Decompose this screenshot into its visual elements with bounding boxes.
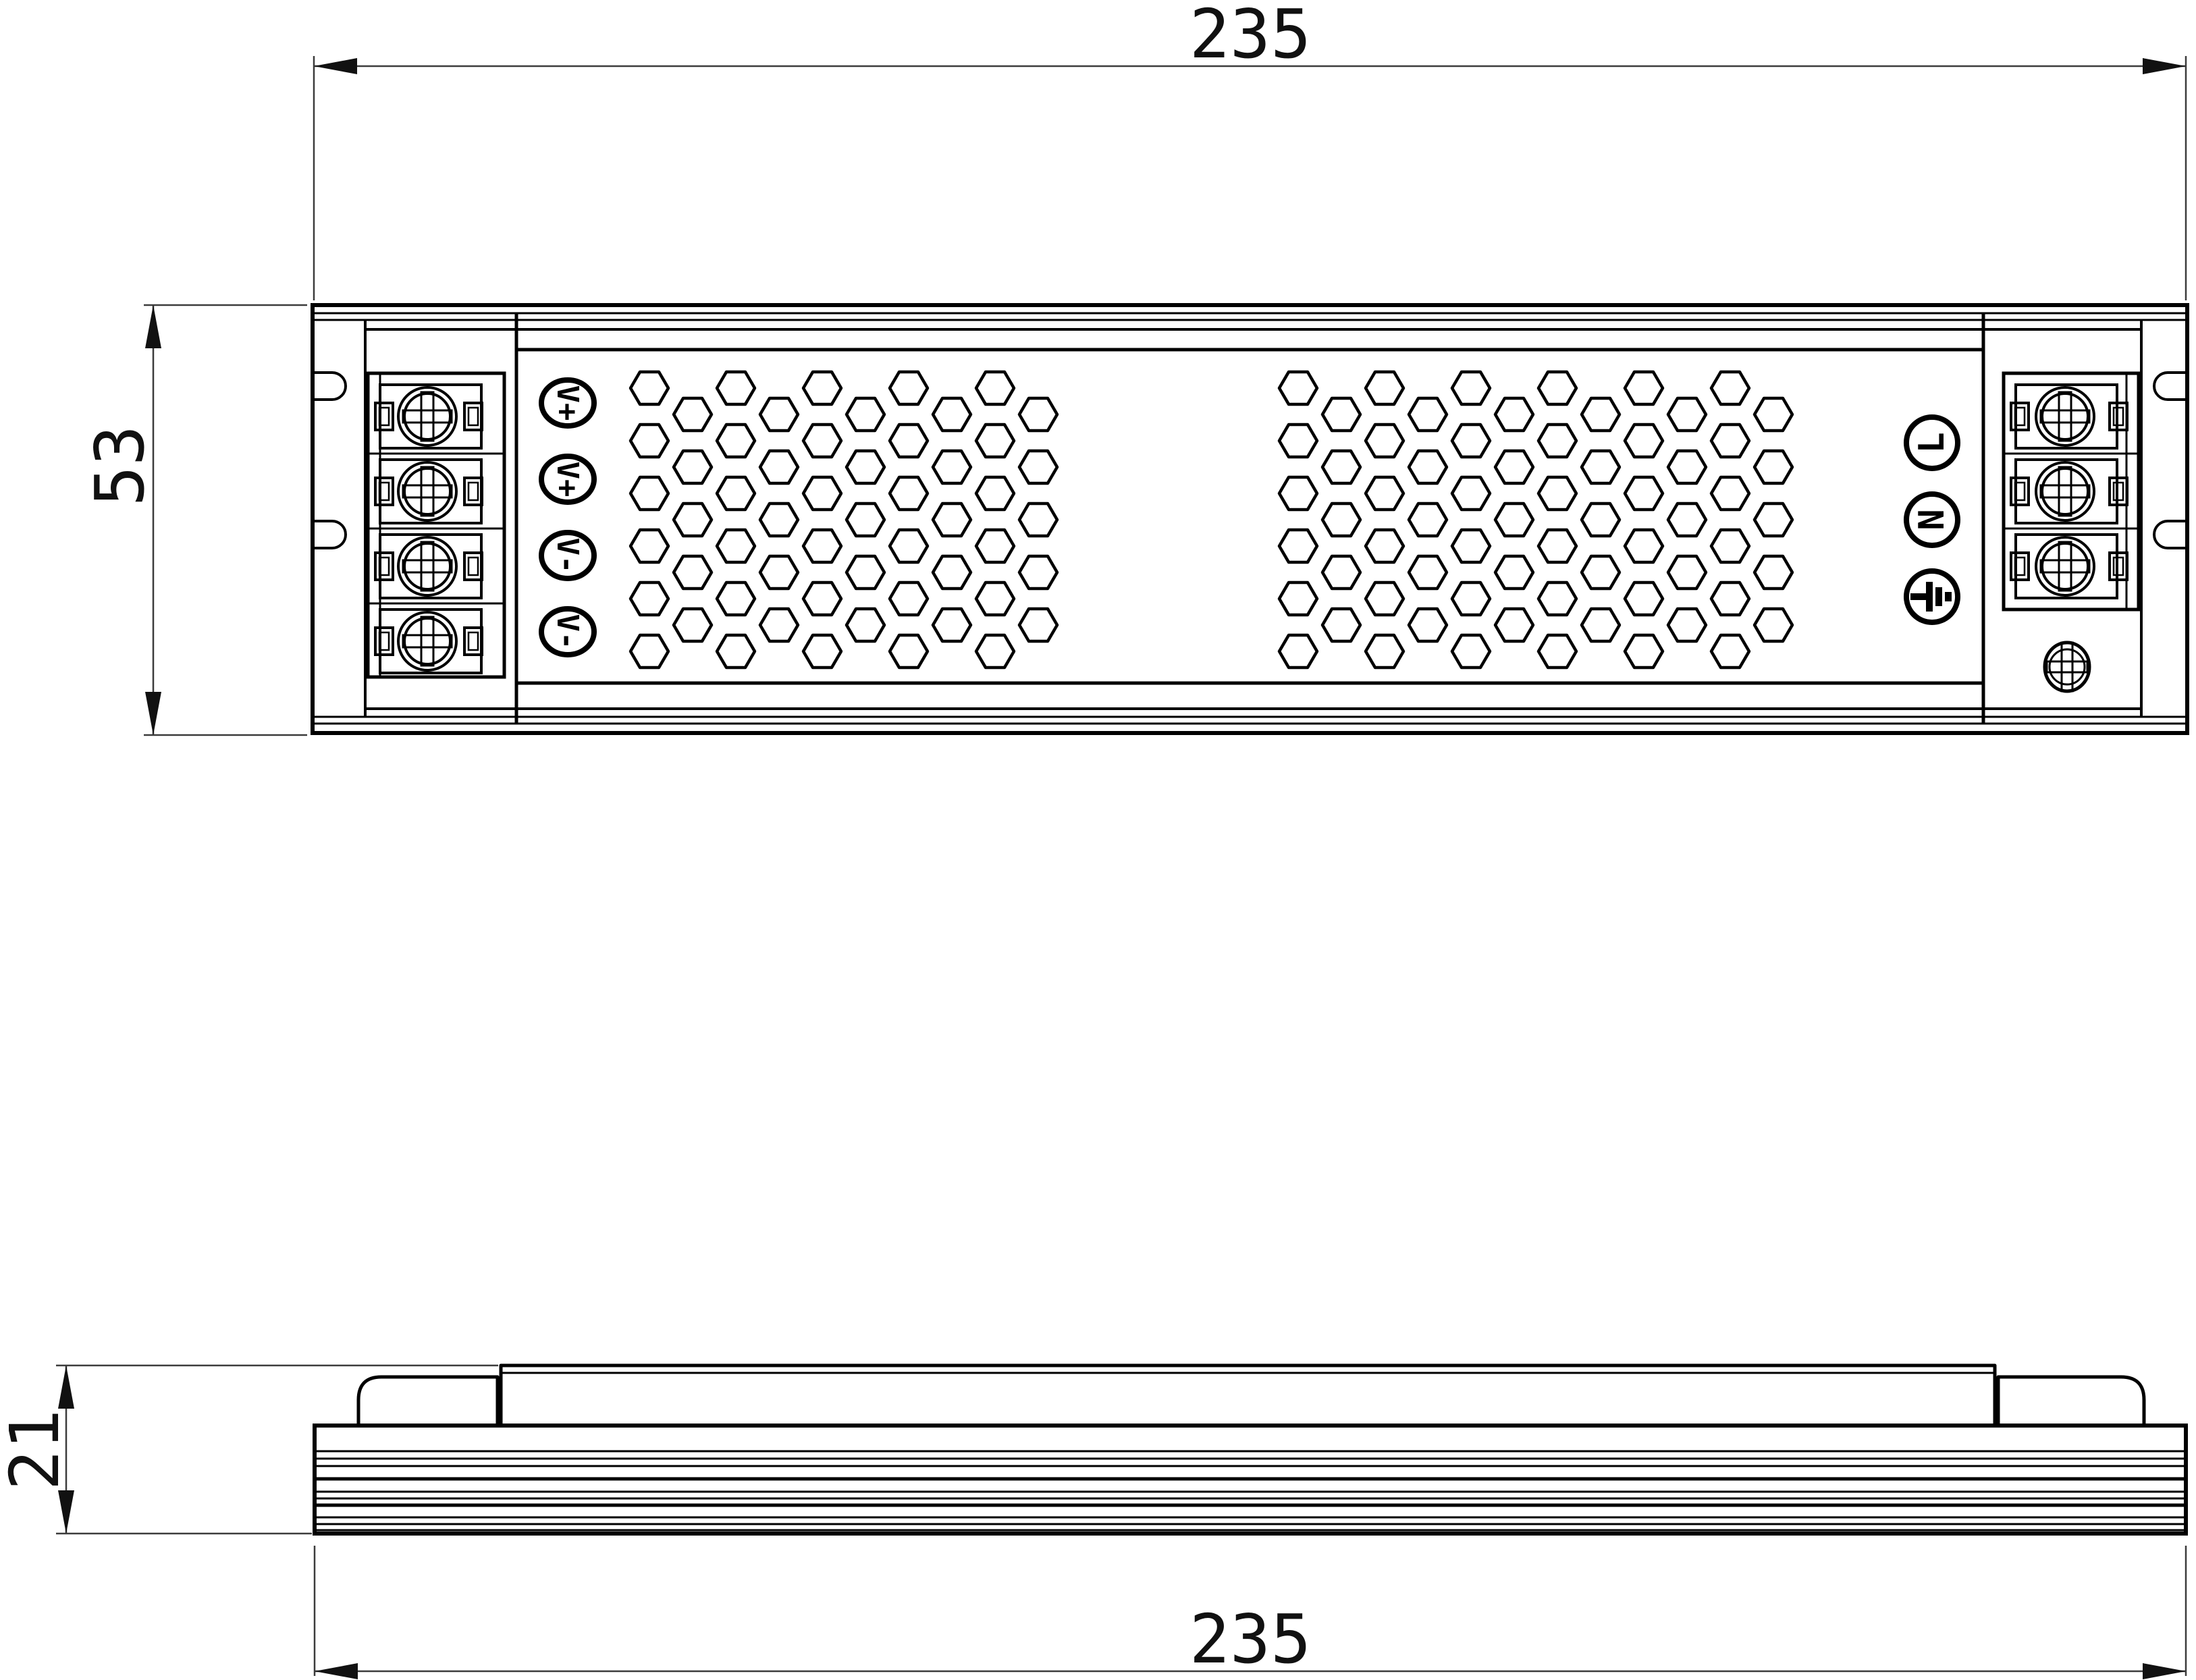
hex-vent-hole	[933, 504, 971, 536]
hex-vent-hole	[1668, 609, 1706, 641]
screw-cross-slot	[2041, 485, 2089, 497]
hex-vent-hole	[1495, 398, 1533, 431]
hex-vent-hole	[631, 635, 668, 668]
hex-vent-hole	[890, 372, 928, 404]
hex-vent-hole	[847, 556, 884, 589]
phillips-screw-icon	[2036, 387, 2094, 445]
hex-vent-hole	[760, 556, 798, 589]
hex-vent-hole	[1366, 530, 1403, 562]
phillips-screw-icon	[2036, 462, 2094, 520]
hex-vent-hole	[1279, 582, 1317, 615]
hex-vent-hole	[1322, 609, 1360, 641]
dim-top-width-text: 235	[1189, 0, 1312, 74]
mounting-notch	[313, 373, 346, 400]
hex-vent-hole	[1755, 504, 1792, 536]
hex-vent-hole	[717, 635, 755, 668]
dim-bottom-width-text: 235	[1189, 1600, 1312, 1679]
phillips-screw-icon	[2036, 537, 2094, 595]
terminal-cell	[375, 385, 482, 448]
mounting-notch	[313, 521, 346, 548]
output-terminal-labels: V+V+V-V-	[541, 380, 594, 655]
dimension-arrow	[145, 692, 161, 735]
hex-vent-hole	[674, 398, 712, 431]
hex-vent-hole	[890, 635, 928, 668]
hex-vent-hole	[1538, 425, 1576, 457]
screw-head-inner	[404, 543, 450, 589]
hex-vent-hole	[631, 425, 668, 457]
screw-head-outer	[398, 462, 456, 520]
hex-vent-hole	[890, 582, 928, 615]
hex-vent-hole	[976, 425, 1014, 457]
hex-vent-hole	[631, 582, 668, 615]
hex-vent-hole	[674, 451, 712, 483]
hex-vent-hole	[1452, 372, 1490, 404]
terminal-clamp-inner	[468, 408, 478, 425]
screw-head-inner	[404, 618, 450, 664]
screw-head-outer	[398, 537, 456, 595]
hex-vent-hole	[1366, 582, 1403, 615]
phillips-screw-icon	[398, 537, 456, 595]
screw-cross-slot	[421, 542, 433, 591]
dim-side-height-text: 21	[0, 1409, 74, 1490]
output-terminal-label: V-	[550, 538, 585, 574]
hex-vent-hole	[1582, 556, 1619, 589]
hex-vent-hole	[1409, 609, 1447, 641]
hex-vent-hole	[1409, 451, 1447, 483]
hex-vent-hole	[631, 477, 668, 510]
hex-vent-hole	[1668, 398, 1706, 431]
dimension-top-width	[314, 56, 2186, 300]
output-terminal-label: V-	[550, 614, 585, 650]
hex-vent-hole	[1711, 372, 1749, 404]
hex-vent-hole	[1366, 635, 1403, 668]
dimension-arrow	[58, 1490, 74, 1534]
screw-head-outer	[2036, 462, 2094, 520]
hex-vent-hole	[1409, 504, 1447, 536]
screw-head-inner	[2042, 468, 2088, 514]
dimension-arrow	[2143, 58, 2186, 74]
output-terminal-block	[368, 373, 504, 677]
screw-cross-slot	[2041, 410, 2089, 423]
hex-vent-hole	[1711, 582, 1749, 615]
dimension-arrow	[2143, 1663, 2186, 1679]
endcap-profile-right	[1998, 1377, 2144, 1426]
hex-vent-hole	[1495, 556, 1533, 589]
terminal-clamp-inner	[468, 558, 478, 575]
hex-vent-hole	[803, 635, 841, 668]
earth-ground-icon	[1910, 582, 1948, 612]
hex-vent-hole	[674, 504, 712, 536]
hex-vent-hole	[933, 451, 971, 483]
hex-vent-hole	[1495, 451, 1533, 483]
housing-top-profile	[501, 1365, 1995, 1426]
terminal-clamp-inner	[468, 632, 478, 650]
hex-vent-hole	[717, 372, 755, 404]
hex-vent-hole	[1711, 425, 1749, 457]
hex-vent-hole	[1409, 398, 1447, 431]
dimension-arrow	[145, 305, 161, 348]
hex-vent-hole	[890, 477, 928, 510]
hex-vent-hole	[1625, 372, 1663, 404]
hex-vent-hole	[1279, 425, 1317, 457]
hex-vent-hole	[1755, 609, 1792, 641]
case-ground-screw	[2045, 643, 2089, 691]
hex-vent-hole	[1538, 635, 1576, 668]
hex-vent-hole	[631, 372, 668, 404]
hex-vent-hole	[890, 530, 928, 562]
hex-vent-hole	[1582, 609, 1619, 641]
terminal-clamp-inner	[468, 483, 478, 500]
screw-cross-slot	[403, 485, 452, 497]
hex-vent-hole	[1322, 451, 1360, 483]
phillips-screw-icon	[398, 462, 456, 520]
dimension-drawing: V+V+V-V-LN 235 53 21 235	[0, 0, 2196, 1680]
hex-vent-hole	[803, 477, 841, 510]
hex-vent-hole	[847, 609, 884, 641]
hex-vent-hole	[933, 556, 971, 589]
hex-vent-hole	[717, 477, 755, 510]
hex-vent-hole	[631, 530, 668, 562]
dim-left-height-text: 53	[80, 425, 159, 506]
screw-cross-slot	[2041, 560, 2089, 572]
screw-cross-slot	[2059, 392, 2071, 441]
hex-vent-hole	[1538, 530, 1576, 562]
hex-vent-hole	[1538, 477, 1576, 510]
hex-vent-hole	[1279, 372, 1317, 404]
endcap-profile-left	[358, 1377, 498, 1426]
dimension-side-height	[56, 1365, 498, 1534]
hex-vent-hole	[1322, 504, 1360, 536]
hex-vent-hole	[933, 398, 971, 431]
terminal-cell	[375, 535, 482, 598]
hex-vent-hole	[847, 451, 884, 483]
screw-cross-slot	[403, 560, 452, 572]
vent-pattern-right	[1279, 372, 1792, 668]
cover-profile	[358, 1365, 2144, 1426]
mounting-notch	[2154, 521, 2187, 548]
hex-vent-hole	[847, 504, 884, 536]
hex-vent-hole	[1322, 398, 1360, 431]
dimension-left-height	[144, 305, 307, 735]
hex-vent-hole	[803, 425, 841, 457]
screw-cross-slot	[2047, 661, 2087, 672]
vent-pattern-left	[631, 372, 1057, 668]
drawing-sheet: V+V+V-V-LN 235 53 21 235	[0, 0, 2196, 1680]
hex-vent-hole	[1366, 372, 1403, 404]
hex-vent-hole	[1279, 530, 1317, 562]
input-terminal-labels: LN	[1906, 417, 1958, 622]
hex-vent-hole	[1495, 609, 1533, 641]
hex-vent-hole	[1582, 451, 1619, 483]
hex-vent-hole	[1711, 530, 1749, 562]
hex-vent-hole	[1495, 504, 1533, 536]
dimension-arrow	[58, 1365, 74, 1409]
screw-cross-slot	[2059, 542, 2071, 591]
hex-vent-hole	[1019, 504, 1057, 536]
hex-vent-hole	[803, 582, 841, 615]
hex-vent-hole	[933, 609, 971, 641]
hex-vent-hole	[1322, 556, 1360, 589]
hex-vent-hole	[1019, 451, 1057, 483]
hex-vent-hole	[1366, 425, 1403, 457]
hex-vent-hole	[1452, 635, 1490, 668]
hex-vent-hole	[976, 635, 1014, 668]
hex-vent-hole	[760, 398, 798, 431]
hex-vent-hole	[1625, 425, 1663, 457]
screw-head-inner	[2050, 649, 2085, 684]
mounting-notch	[2154, 373, 2187, 400]
screw-cross-slot	[403, 635, 452, 647]
hex-vent-hole	[1409, 556, 1447, 589]
output-terminal-label: V+	[550, 462, 585, 497]
hex-vent-hole	[1538, 582, 1576, 615]
input-terminal-label: L	[1912, 432, 1952, 453]
hex-vent-hole	[1625, 477, 1663, 510]
hex-vent-hole	[717, 530, 755, 562]
screw-head-inner	[404, 468, 450, 514]
hex-vent-hole	[1452, 582, 1490, 615]
screw-head-inner	[2042, 394, 2088, 439]
hex-vent-hole	[1668, 504, 1706, 536]
hex-vent-hole	[803, 530, 841, 562]
screw-cross-slot	[421, 617, 433, 666]
hex-vent-hole	[1019, 609, 1057, 641]
hex-vent-hole	[717, 582, 755, 615]
screw-cross-slot	[421, 467, 433, 516]
hex-vent-hole	[1538, 372, 1576, 404]
hex-vent-hole	[976, 372, 1014, 404]
dimension-arrow	[315, 1663, 358, 1679]
input-terminal-block	[2004, 373, 2139, 609]
hex-vent-hole	[976, 477, 1014, 510]
hex-vent-hole	[1452, 425, 1490, 457]
hex-vent-hole	[1582, 398, 1619, 431]
hex-vent-hole	[1755, 451, 1792, 483]
output-terminal-label: V+	[550, 385, 585, 421]
screw-head-outer	[2036, 537, 2094, 595]
hex-vent-hole	[1755, 556, 1792, 589]
hex-vent-hole	[803, 372, 841, 404]
dimension-arrow	[314, 58, 357, 74]
top-view: V+V+V-V-LN	[313, 305, 2187, 733]
hex-vent-hole	[1452, 530, 1490, 562]
terminal-cell	[2011, 460, 2127, 523]
phillips-screw-icon	[398, 612, 456, 670]
hex-vent-hole	[976, 530, 1014, 562]
hex-vent-hole	[1668, 451, 1706, 483]
hex-vent-hole	[1755, 398, 1792, 431]
hex-vent-hole	[674, 556, 712, 589]
hex-vent-hole	[674, 609, 712, 641]
screw-cross-slot	[2059, 467, 2071, 516]
hex-vent-hole	[1366, 477, 1403, 510]
hex-vent-hole	[847, 398, 884, 431]
hex-vent-hole	[1625, 582, 1663, 615]
terminal-cell	[2011, 535, 2127, 598]
terminal-cell	[375, 609, 482, 673]
hex-vent-hole	[1279, 635, 1317, 668]
hex-vent-hole	[717, 425, 755, 457]
hex-vent-hole	[760, 609, 798, 641]
hex-vent-hole	[890, 425, 928, 457]
terminal-cell	[375, 460, 482, 523]
terminal-cell	[2011, 385, 2127, 448]
hex-vent-hole	[1019, 556, 1057, 589]
hex-vent-hole	[976, 582, 1014, 615]
hex-vent-hole	[760, 451, 798, 483]
hex-vent-hole	[1625, 530, 1663, 562]
screw-head-outer	[2036, 387, 2094, 445]
screw-head-outer	[398, 612, 456, 670]
hex-vent-hole	[1711, 635, 1749, 668]
hex-vent-hole	[1711, 477, 1749, 510]
hex-vent-hole	[1582, 504, 1619, 536]
hex-vent-hole	[760, 504, 798, 536]
hex-vent-hole	[1279, 477, 1317, 510]
hex-vent-hole	[1668, 556, 1706, 589]
screw-cross-slot	[403, 410, 452, 423]
phillips-screw-icon	[398, 387, 456, 445]
hex-vent-hole	[1019, 398, 1057, 431]
screw-head-inner	[404, 394, 450, 439]
hex-vent-hole	[1625, 635, 1663, 668]
screw-head-inner	[2042, 543, 2088, 589]
screw-cross-slot	[421, 392, 433, 441]
input-terminal-label: N	[1912, 509, 1952, 530]
side-view	[315, 1365, 2186, 1534]
hex-vent-hole	[1452, 477, 1490, 510]
base-profile	[315, 1426, 2186, 1534]
screw-head-outer	[398, 387, 456, 445]
